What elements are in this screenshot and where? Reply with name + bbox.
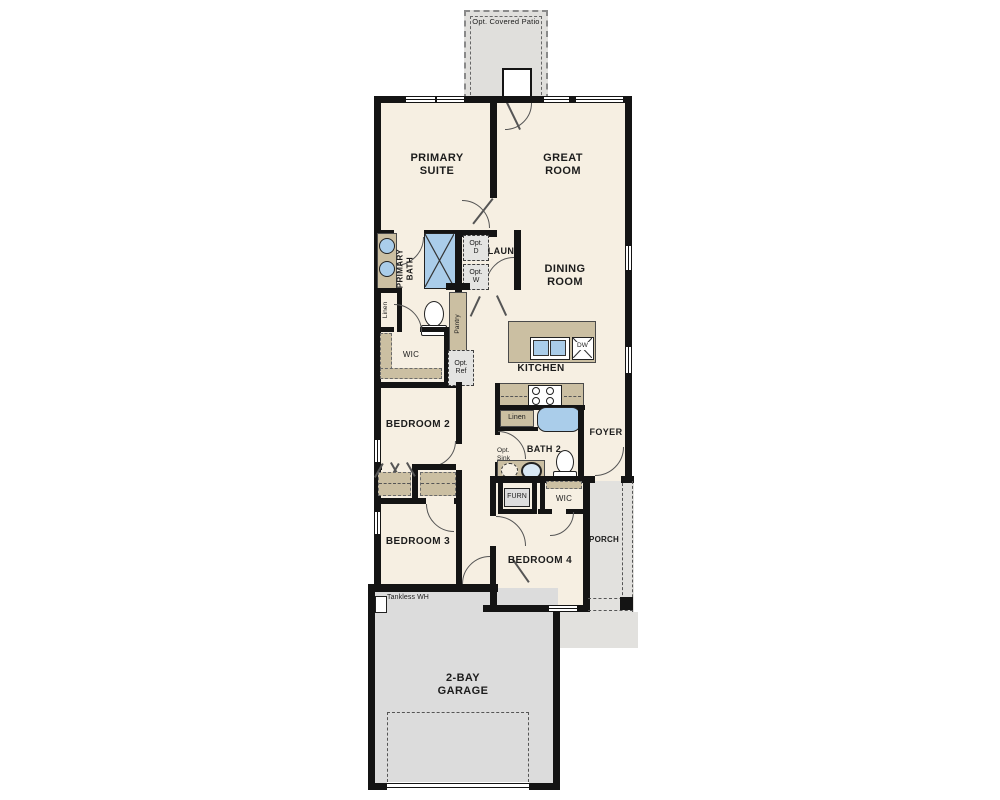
- shower: [424, 233, 456, 289]
- wall: [498, 509, 537, 514]
- door-arc: [496, 516, 526, 546]
- burner: [532, 397, 540, 405]
- closet-dash: [379, 483, 410, 484]
- walkway: [556, 612, 638, 648]
- garage-door-line: [387, 783, 529, 784]
- garage-door-line: [387, 787, 529, 788]
- tankless-label: Tankless WH: [385, 594, 431, 602]
- burner: [546, 387, 554, 395]
- room-label-wic-primary: WIC: [396, 350, 426, 360]
- wall: [446, 283, 470, 290]
- patio-label: Opt. Covered Patio: [464, 17, 548, 26]
- sink-basin: [550, 340, 566, 356]
- window: [374, 512, 381, 534]
- closet-shelf: [378, 472, 411, 496]
- toilet: [424, 301, 444, 327]
- linen-primary-label: Linen: [382, 290, 390, 330]
- wall: [412, 464, 456, 470]
- wall: [553, 612, 560, 790]
- room-label-primary-suite: PRIMARY SUITE: [402, 152, 472, 178]
- cabinet-dash: [564, 396, 581, 397]
- wall: [490, 96, 497, 198]
- window: [625, 246, 632, 270]
- room-label-bedroom4: BEDROOM 4: [500, 555, 580, 567]
- opt-ref-box: Opt. Ref: [448, 350, 474, 386]
- closet-shelf: [380, 368, 442, 379]
- dishwasher-label: DW: [575, 342, 590, 350]
- door-arc: [486, 257, 514, 285]
- room-label-foyer: FOYER: [584, 427, 628, 438]
- door-arc: [462, 200, 490, 228]
- front-door-arc: [595, 447, 624, 476]
- wall: [490, 584, 497, 612]
- window: [549, 605, 577, 612]
- closet-shelf: [546, 481, 582, 489]
- island-sink-unit: [530, 337, 570, 360]
- door-arc: [394, 304, 422, 332]
- wall: [374, 498, 426, 504]
- room-label-kitchen: KITCHEN: [506, 363, 576, 375]
- room-label-laundry: LAUN: [486, 246, 516, 257]
- wall: [625, 96, 632, 483]
- room-label-dining-room: DINING ROOM: [536, 263, 594, 289]
- wall: [514, 230, 521, 290]
- sink: [379, 238, 395, 254]
- wall: [374, 327, 394, 332]
- room-label-porch: PORCH: [582, 535, 626, 545]
- burner: [546, 397, 554, 405]
- sink-basin: [533, 340, 549, 356]
- room-label-wic-bedroom4: WIC: [548, 494, 580, 504]
- wall: [368, 584, 498, 592]
- porch-floor: [590, 481, 634, 612]
- wall: [412, 464, 418, 498]
- closet-dash: [421, 483, 455, 484]
- porch-post: [620, 597, 633, 610]
- wall: [490, 476, 496, 516]
- bathtub: [537, 407, 581, 432]
- door-arc: [426, 504, 454, 532]
- room-label-garage: 2-BAY GARAGE: [428, 672, 498, 698]
- room-label-bedroom2: BEDROOM 2: [378, 419, 458, 431]
- sink: [379, 261, 395, 277]
- wall: [368, 584, 375, 790]
- pantry-label: Pantry: [454, 304, 462, 344]
- dishwasher: DW: [572, 337, 594, 360]
- driveway-dashed: [387, 712, 529, 782]
- opt-ref-label: Opt. Ref: [451, 360, 471, 375]
- room-label-bedroom3: BEDROOM 3: [378, 536, 458, 548]
- window: [437, 96, 464, 103]
- window: [576, 96, 623, 103]
- window: [406, 96, 435, 103]
- floor-plan: Opt. Covered Patio PRIMARY SUITE GREAT R…: [0, 0, 1000, 800]
- opt-dryer-label: Opt. D: [467, 240, 485, 255]
- linen2-label: Linen: [500, 414, 534, 422]
- closet-shelf: [420, 472, 456, 496]
- wall: [578, 405, 584, 481]
- window: [544, 96, 569, 103]
- door-arc: [462, 556, 490, 584]
- door-arc: [550, 512, 574, 536]
- room-label-furnace: FURN: [504, 493, 530, 501]
- porch-dash: [588, 610, 633, 611]
- window: [374, 440, 381, 462]
- porch-dash: [632, 481, 633, 612]
- burner: [532, 387, 540, 395]
- window: [625, 347, 632, 373]
- room-label-great-room: GREAT ROOM: [536, 152, 590, 178]
- cabinet-dash: [501, 396, 527, 397]
- wall: [456, 382, 462, 444]
